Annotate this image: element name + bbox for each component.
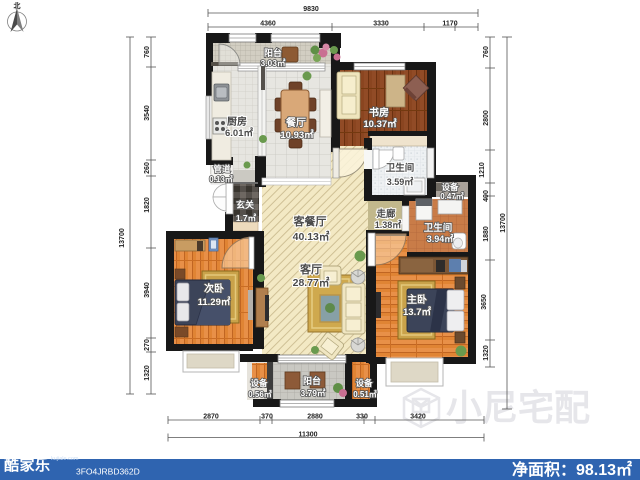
svg-text:28.77㎡: 28.77㎡ bbox=[293, 276, 330, 289]
svg-text:客厅: 客厅 bbox=[299, 262, 322, 276]
svg-text:0.13㎡: 0.13㎡ bbox=[209, 174, 233, 184]
svg-text:3940: 3940 bbox=[144, 282, 151, 298]
svg-text:9830: 9830 bbox=[303, 6, 319, 13]
svg-text:1210: 1210 bbox=[479, 162, 486, 178]
svg-text:10.93㎡: 10.93㎡ bbox=[280, 129, 314, 141]
svg-text:3.03㎡: 3.03㎡ bbox=[260, 58, 286, 68]
svg-text:11.29㎡: 11.29㎡ bbox=[198, 296, 231, 308]
svg-text:370: 370 bbox=[261, 414, 273, 421]
svg-text:小尼宅配: 小尼宅配 bbox=[446, 387, 590, 428]
svg-text:1170: 1170 bbox=[442, 21, 457, 28]
svg-text:设备: 设备 bbox=[355, 378, 373, 388]
svg-text:阳台: 阳台 bbox=[303, 375, 321, 386]
svg-text:酷家乐: 酷家乐 bbox=[4, 456, 51, 474]
svg-text:阳台: 阳台 bbox=[264, 47, 282, 58]
svg-text:13700: 13700 bbox=[119, 228, 126, 248]
svg-text:管道: 管道 bbox=[213, 164, 231, 174]
svg-text:13.7㎡: 13.7㎡ bbox=[403, 306, 431, 318]
svg-text:1320: 1320 bbox=[483, 345, 490, 361]
svg-text:760: 760 bbox=[144, 46, 151, 58]
svg-text:3330: 3330 bbox=[373, 21, 389, 28]
svg-text:260: 260 bbox=[144, 162, 151, 174]
svg-text:1820: 1820 bbox=[144, 197, 151, 213]
svg-text:13700: 13700 bbox=[500, 213, 507, 233]
svg-text:270: 270 bbox=[144, 339, 151, 351]
svg-text:2880: 2880 bbox=[307, 414, 323, 421]
svg-text:3.94㎡: 3.94㎡ bbox=[427, 233, 454, 244]
svg-text:厨房: 厨房 bbox=[227, 115, 247, 128]
svg-text:净面积：98.13㎡: 净面积：98.13㎡ bbox=[512, 460, 632, 479]
svg-text:2800: 2800 bbox=[483, 110, 490, 126]
svg-text:卫生间: 卫生间 bbox=[424, 222, 453, 234]
svg-text:kujiale.com: kujiale.com bbox=[51, 456, 79, 462]
svg-text:0.47㎡: 0.47㎡ bbox=[440, 191, 464, 201]
svg-text:1.7㎡: 1.7㎡ bbox=[236, 213, 257, 223]
svg-text:3650: 3650 bbox=[481, 294, 488, 310]
svg-text:3FO4JRBD362D: 3FO4JRBD362D bbox=[76, 467, 140, 477]
svg-text:3420: 3420 bbox=[410, 414, 426, 421]
svg-text:4360: 4360 bbox=[260, 21, 276, 28]
svg-text:1880: 1880 bbox=[483, 226, 490, 242]
svg-text:40.13㎡: 40.13㎡ bbox=[293, 230, 330, 243]
svg-text:0.51㎡: 0.51㎡ bbox=[353, 389, 377, 399]
svg-text:3.59㎡: 3.59㎡ bbox=[387, 176, 414, 187]
svg-text:卫生间: 卫生间 bbox=[386, 162, 415, 174]
svg-text:玄关: 玄关 bbox=[236, 199, 254, 210]
svg-text:书房: 书房 bbox=[369, 106, 389, 119]
svg-text:主卧: 主卧 bbox=[407, 293, 427, 306]
svg-text:0.56㎡: 0.56㎡ bbox=[248, 389, 272, 399]
svg-text:走廊: 走廊 bbox=[375, 208, 396, 220]
svg-text:3.79㎡: 3.79㎡ bbox=[300, 388, 326, 398]
svg-text:次卧: 次卧 bbox=[204, 282, 224, 295]
svg-text:2870: 2870 bbox=[203, 414, 219, 421]
svg-text:3540: 3540 bbox=[144, 105, 151, 121]
svg-text:330: 330 bbox=[356, 414, 368, 421]
svg-text:10.37㎡: 10.37㎡ bbox=[363, 118, 397, 130]
svg-text:11300: 11300 bbox=[298, 432, 317, 439]
svg-text:1.38㎡: 1.38㎡ bbox=[375, 219, 402, 230]
svg-text:400: 400 bbox=[483, 190, 490, 202]
svg-text:餐厅: 餐厅 bbox=[285, 116, 306, 129]
svg-text:设备: 设备 bbox=[250, 378, 268, 388]
svg-text:客餐厅: 客餐厅 bbox=[293, 214, 327, 228]
svg-text:设备: 设备 bbox=[441, 182, 459, 192]
svg-text:1320: 1320 bbox=[144, 365, 151, 381]
svg-text:760: 760 bbox=[483, 46, 490, 58]
svg-text:6.01㎡: 6.01㎡ bbox=[225, 127, 253, 139]
